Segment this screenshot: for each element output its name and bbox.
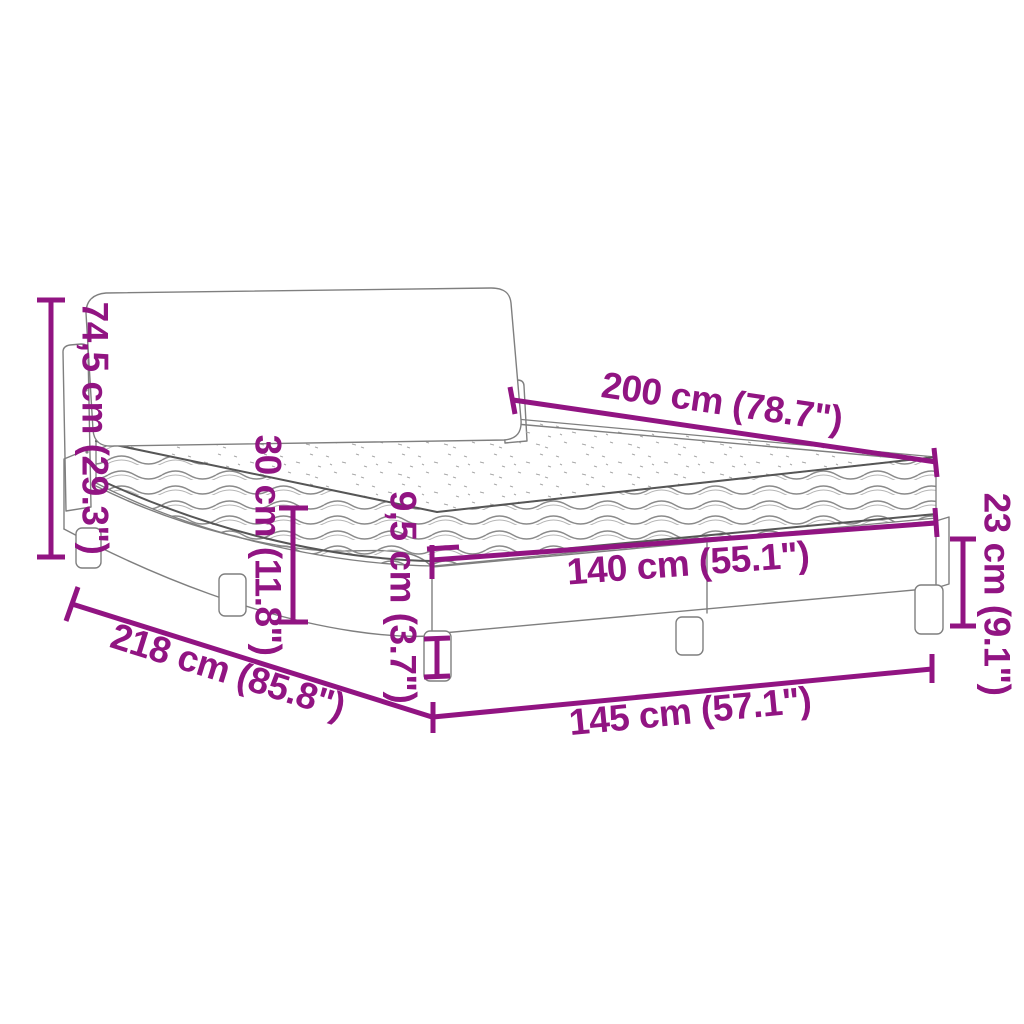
dimension-total-height [37, 300, 65, 557]
dim-label-leg-height: 9,5 cm (3.7") [382, 491, 423, 704]
dim-label-total-depth: 218 cm (85.8") [106, 615, 350, 727]
headboard [86, 288, 521, 446]
dim-label-frame-height: 23 cm (9.1") [976, 493, 1017, 696]
bed-illustration [63, 288, 949, 681]
dim-label-total-height: 74,5 cm (29.3") [74, 302, 115, 555]
dim-label-total-width: 145 cm (57.1") [567, 679, 813, 743]
bed-dimension-diagram: 74,5 cm (29.3") 200 cm (78.7") 30 cm (11… [0, 0, 1024, 1024]
dim-label-mattress-thickness: 30 cm (11.8") [247, 435, 288, 656]
dimension-frame-height [950, 539, 976, 626]
diagram-canvas: 74,5 cm (29.3") 200 cm (78.7") 30 cm (11… [0, 0, 1024, 1024]
